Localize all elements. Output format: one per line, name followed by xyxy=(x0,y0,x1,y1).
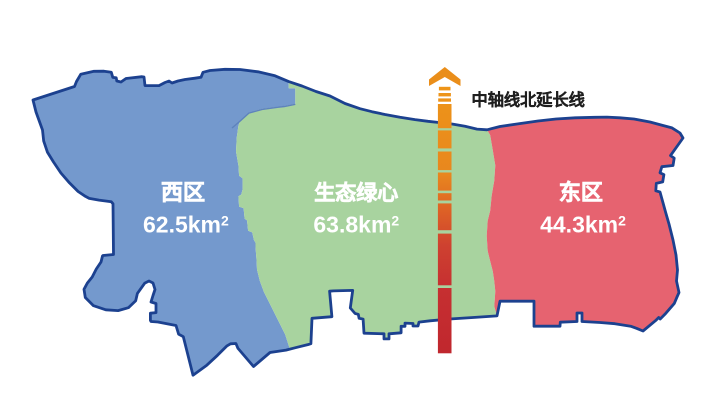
svg-text:中轴线北延长线: 中轴线北延长线 xyxy=(472,90,585,109)
svg-text:44.3km2: 44.3km2 xyxy=(540,212,626,238)
svg-text:生态绿心: 生态绿心 xyxy=(314,181,398,205)
svg-text:西区: 西区 xyxy=(161,180,205,205)
svg-text:63.8km2: 63.8km2 xyxy=(313,212,399,238)
svg-text:东区: 东区 xyxy=(559,180,603,205)
svg-text:62.5km2: 62.5km2 xyxy=(143,212,229,238)
